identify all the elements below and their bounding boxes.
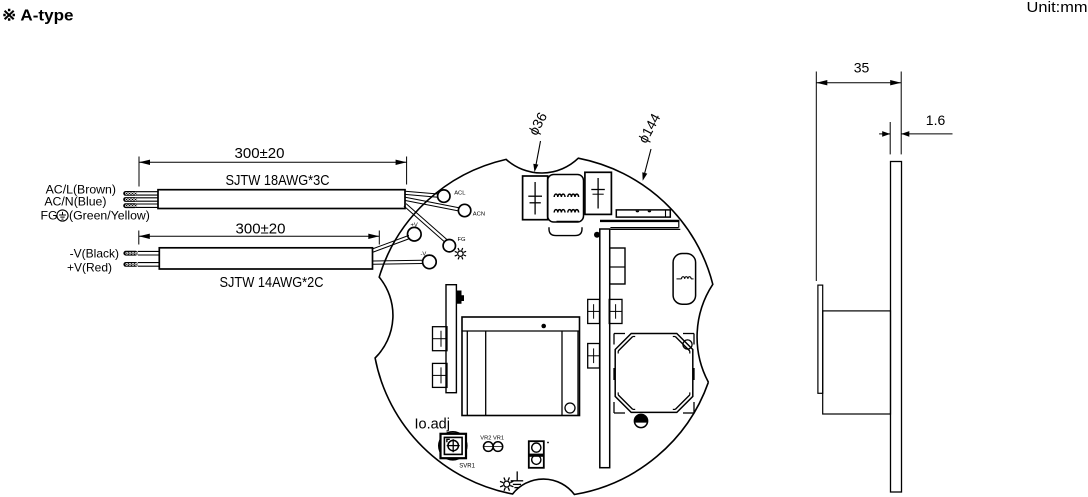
svg-text:Io.adj: Io.adj: [415, 417, 450, 433]
svg-text:SJTW 14AWG*2C: SJTW 14AWG*2C: [220, 274, 324, 291]
svg-text:FG: FG: [41, 209, 58, 223]
svg-text:35: 35: [854, 59, 870, 75]
svg-text:VR2 VR1: VR2 VR1: [480, 436, 504, 442]
svg-text:ACN: ACN: [473, 212, 485, 218]
svg-text:SVR1: SVR1: [459, 464, 475, 470]
svg-text:300±20: 300±20: [236, 221, 286, 238]
svg-text:+V: +V: [411, 223, 418, 229]
svg-text:-V(Black): -V(Black): [70, 247, 119, 261]
svg-text:300±20: 300±20: [235, 145, 285, 162]
svg-text:AC/N(Blue): AC/N(Blue): [44, 195, 106, 209]
svg-text:ACL: ACL: [454, 191, 466, 197]
svg-text:FG: FG: [458, 237, 467, 243]
svg-text:Unit:mm: Unit:mm: [1027, 0, 1088, 16]
svg-text:1.6: 1.6: [926, 112, 946, 128]
svg-text:-V: -V: [421, 252, 427, 258]
svg-text:(Green/Yellow): (Green/Yellow): [69, 209, 150, 223]
svg-text:※ A-type: ※ A-type: [2, 8, 74, 25]
svg-text:SJTW 18AWG*3C: SJTW 18AWG*3C: [226, 172, 330, 189]
svg-text:+V(Red): +V(Red): [67, 261, 112, 275]
